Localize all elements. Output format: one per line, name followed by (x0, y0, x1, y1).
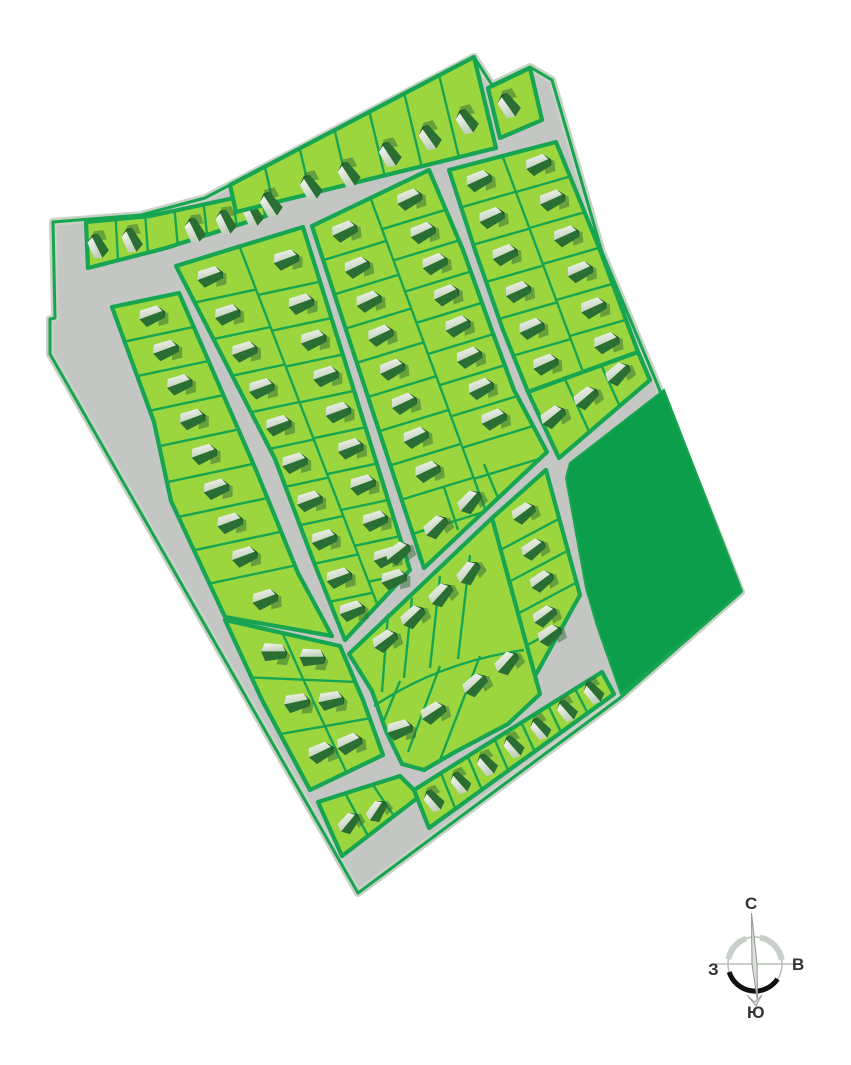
svg-text:Ю: Ю (747, 1003, 765, 1022)
svg-text:С: С (745, 894, 757, 913)
svg-text:З: З (708, 960, 719, 979)
svg-text:В: В (792, 955, 804, 974)
